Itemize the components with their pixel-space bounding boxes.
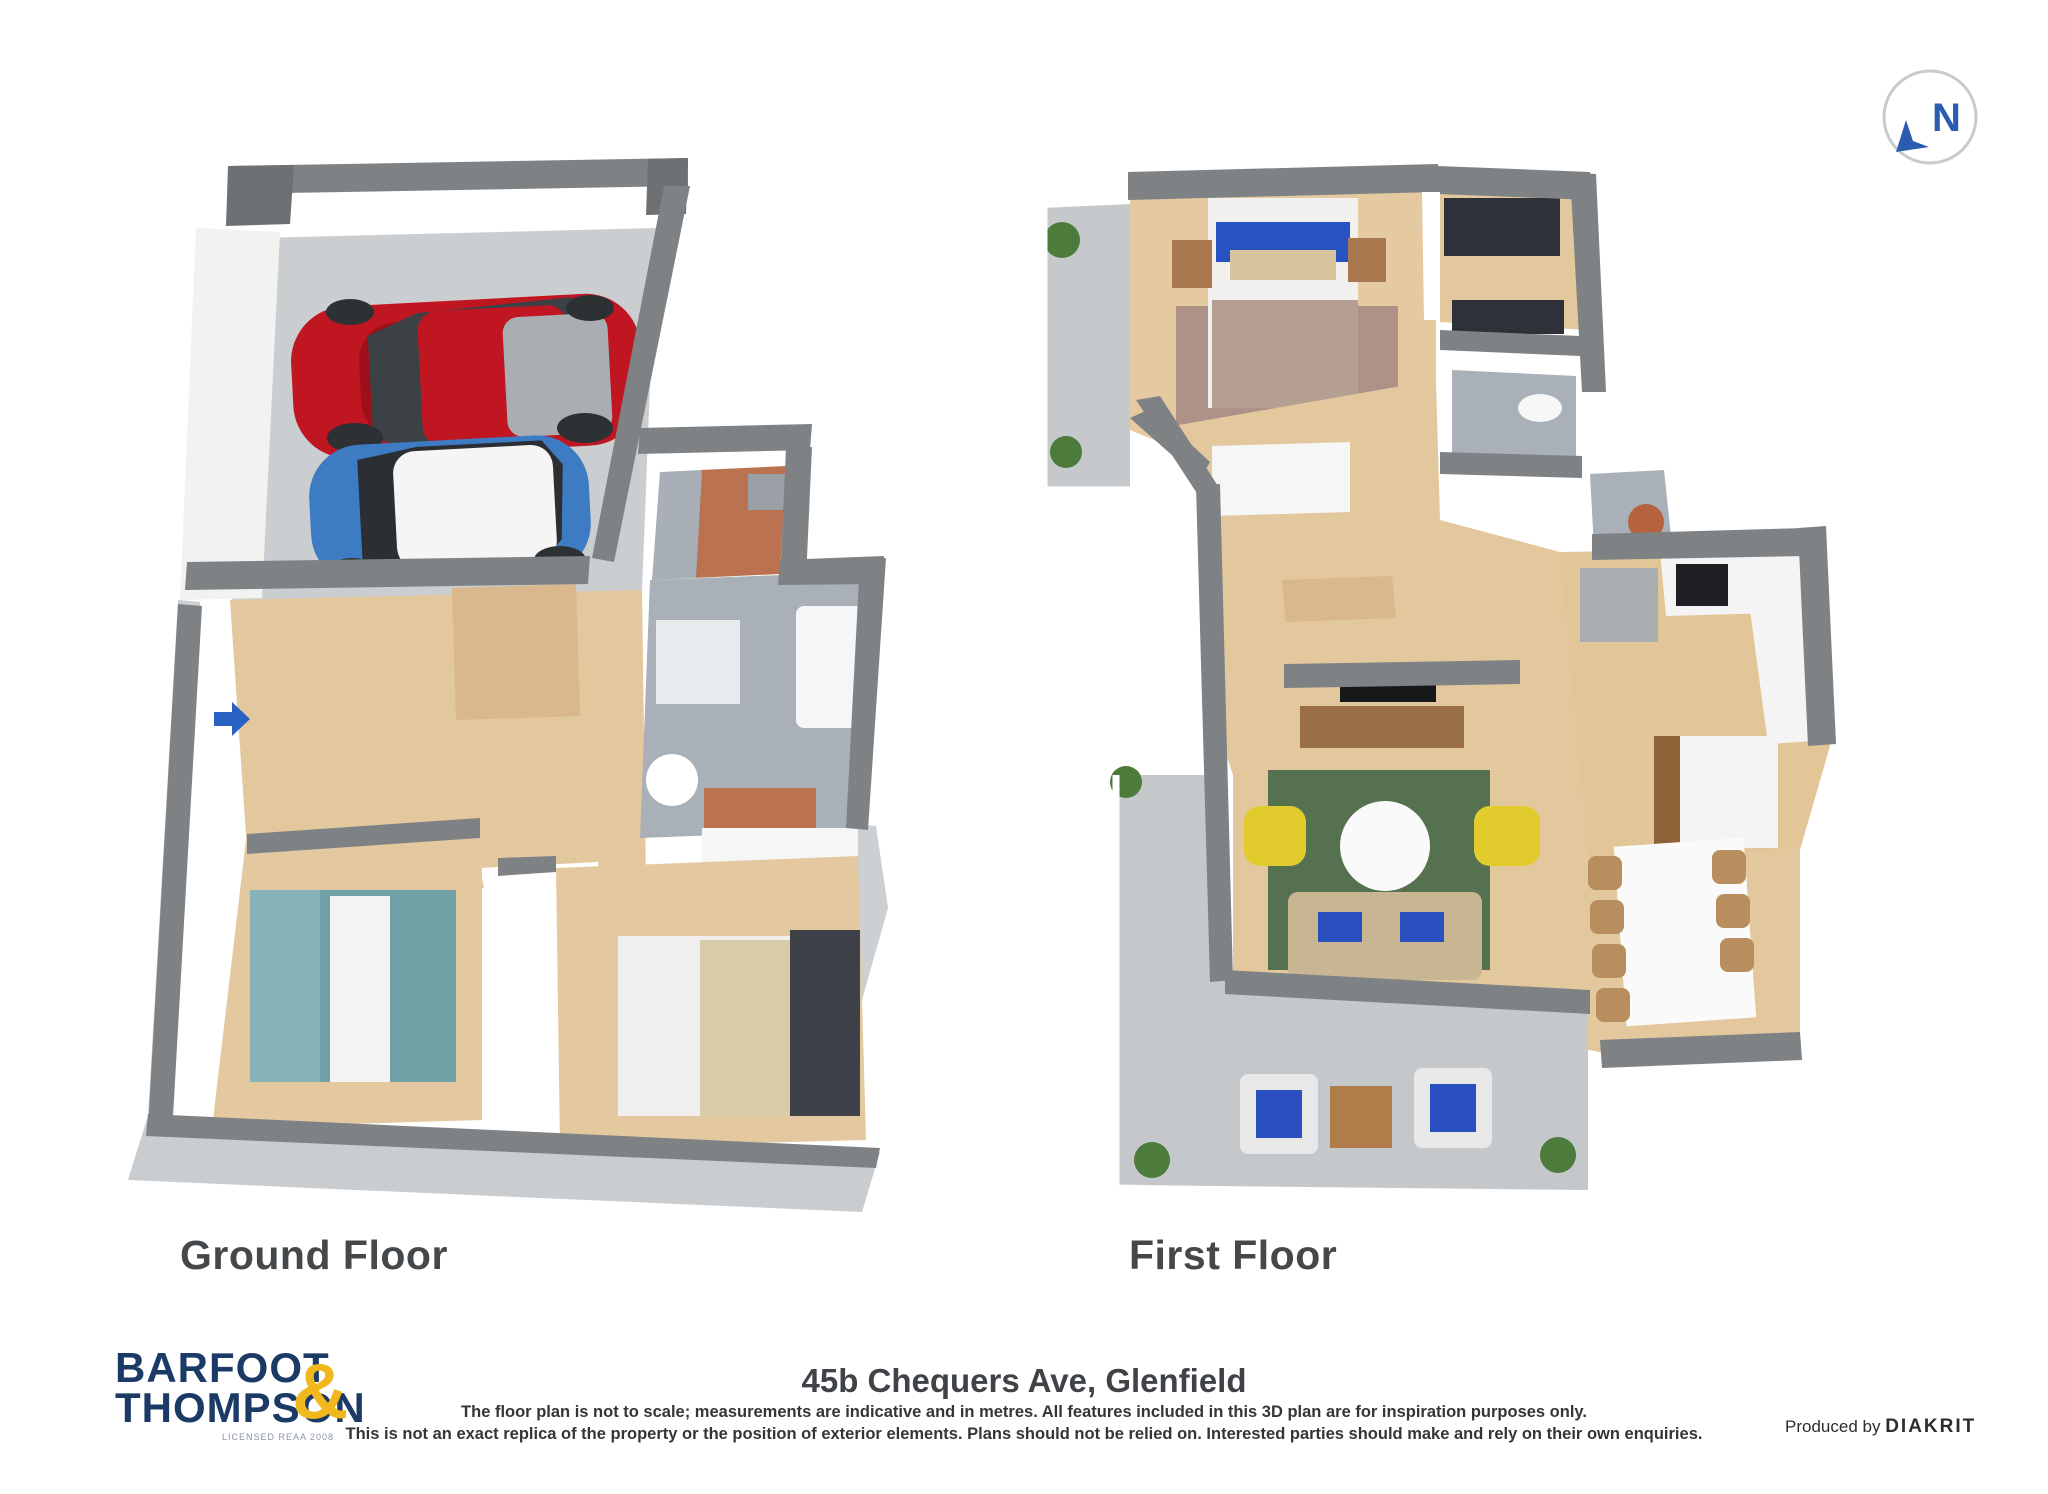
svg-text:N: N: [1932, 96, 1961, 140]
